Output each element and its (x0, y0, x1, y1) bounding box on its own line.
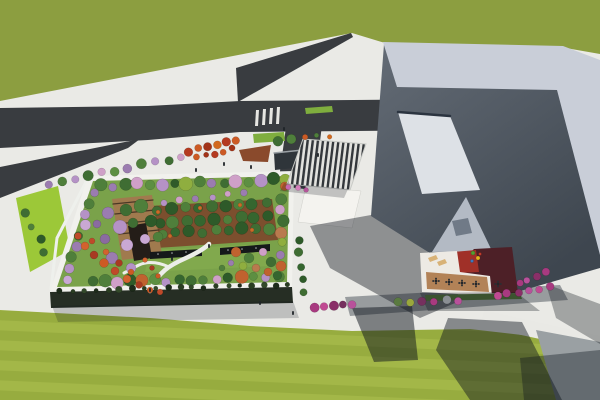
architectural-rendering (0, 0, 600, 400)
shadow-apron (520, 350, 600, 400)
site-plan-svg (0, 0, 600, 400)
